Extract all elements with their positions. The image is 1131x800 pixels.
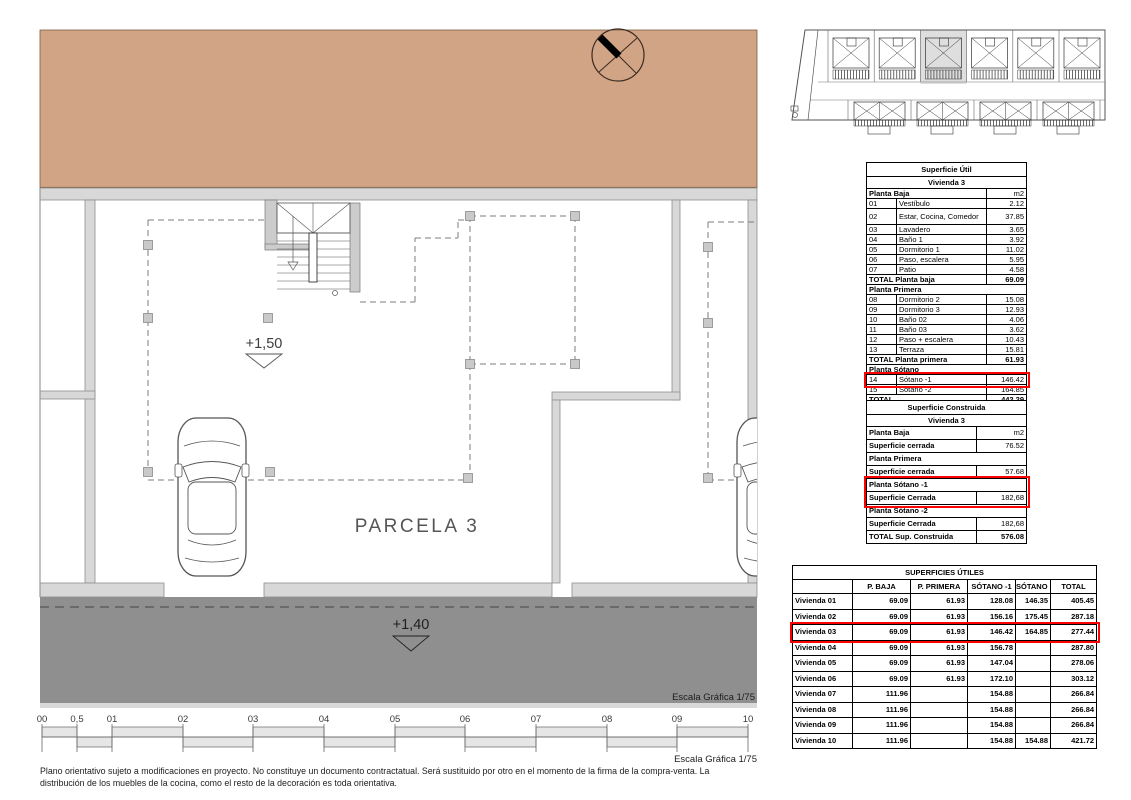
- stairs: [265, 200, 360, 296]
- area-value: 154.88: [1016, 733, 1051, 749]
- area-value: [1016, 702, 1051, 718]
- site-top-row: [828, 30, 1105, 82]
- table-row: 07Patio4.58: [867, 265, 1027, 275]
- graphic-scale: 000,501020304050607080910: [37, 714, 754, 752]
- table-row: Planta Primera: [867, 285, 1027, 295]
- row-value: 15.08: [987, 295, 1027, 305]
- row-value: 3.92: [987, 235, 1027, 245]
- row-label: Dormitorio 1: [897, 245, 987, 255]
- table-row: Superficie Útil: [867, 163, 1027, 177]
- table-row: Vivienda 0169.0961.93128.08146.35405.45: [793, 594, 1097, 610]
- scale-number: 06: [460, 714, 471, 725]
- total-value: 576.08: [977, 531, 1027, 544]
- row-number: 02: [867, 209, 897, 225]
- table-row: 10Baño 024.06: [867, 315, 1027, 325]
- car: [175, 418, 249, 576]
- area-value: 146.42: [968, 625, 1016, 641]
- table-row: Vivienda 0469.0961.93156.78287.80: [793, 640, 1097, 656]
- plan-sheet: PARCELA 3 +1,50 +1,40 Escala Gráfica 1/7…: [0, 0, 1131, 800]
- table-row: SUPERFICIES ÚTILES: [793, 566, 1097, 580]
- table-row: 08Dormitorio 215.08: [867, 295, 1027, 305]
- area-value: 266.84: [1051, 702, 1097, 718]
- scale-number: 03: [248, 714, 259, 725]
- row-value: 37.85: [987, 209, 1027, 225]
- table-row: P. BAJAP. PRIMERASÓTANO -1SÓTANO -2TOTAL: [793, 580, 1097, 594]
- area-value: 266.84: [1051, 687, 1097, 703]
- level-triangle-upper: [246, 354, 282, 368]
- row-value: 11.02: [987, 245, 1027, 255]
- area-value: 61.93: [911, 671, 968, 687]
- scale-number: 00: [37, 714, 48, 725]
- area-value: [1016, 656, 1051, 672]
- area-value: 164.85: [1016, 625, 1051, 641]
- area-value: 172.10: [968, 671, 1016, 687]
- area-value: 421.72: [1051, 733, 1097, 749]
- area-value: 154.88: [968, 733, 1016, 749]
- table-row: 11Baño 033.62: [867, 325, 1027, 335]
- row-number: 14: [867, 375, 897, 385]
- table-row: Vivienda 3: [867, 177, 1027, 189]
- scale-number: 0,5: [70, 714, 83, 725]
- table-subtitle: Vivienda 3: [867, 177, 1027, 189]
- row-value: 3.62: [987, 325, 1027, 335]
- scale-caption-band: Escala Gráfica 1/75: [672, 692, 755, 703]
- table-row: 05Dormitorio 111.02: [867, 245, 1027, 255]
- area-value: 69.09: [853, 640, 911, 656]
- row-value: 5.95: [987, 255, 1027, 265]
- vivienda-label: Vivienda 09: [793, 718, 853, 734]
- row-value: 164.85: [987, 385, 1027, 395]
- row-value: 182,68: [977, 518, 1027, 531]
- row-number: 05: [867, 245, 897, 255]
- table-row: 06Paso, escalera5.95: [867, 255, 1027, 265]
- table-title: Superficie Construida: [867, 401, 1027, 415]
- row-label: Superficie cerrada: [867, 466, 977, 479]
- row-number: 06: [867, 255, 897, 265]
- scale-number: 05: [390, 714, 401, 725]
- row-value: 4.58: [987, 265, 1027, 275]
- column-header: TOTAL: [1051, 580, 1097, 594]
- total-value: 69.09: [987, 275, 1027, 285]
- scale-number: 02: [178, 714, 189, 725]
- area-value: 69.09: [853, 609, 911, 625]
- parcel-label: PARCELA 3: [355, 516, 480, 537]
- table-row: Vivienda 08111.96154.88266.84: [793, 702, 1097, 718]
- row-value: 2.12: [987, 199, 1027, 209]
- area-value: [911, 733, 968, 749]
- table-row: TOTAL Sup. Construida576.08: [867, 531, 1027, 544]
- table-title: Superficie Útil: [867, 163, 1027, 177]
- row-label: Vestíbulo: [897, 199, 987, 209]
- total-label: TOTAL Planta baja: [867, 275, 987, 285]
- table-row: 12Paso + escalera10.43: [867, 335, 1027, 345]
- vivienda-label: Vivienda 05: [793, 656, 853, 672]
- column-header: SÓTANO -1: [968, 580, 1016, 594]
- table-row: Superficie Cerrada182,68: [867, 492, 1027, 505]
- row-label: Dormitorio 3: [897, 305, 987, 315]
- section-label: Planta Primera: [867, 285, 1027, 295]
- table-row: Vivienda 0269.0961.93156.16175.45287.18: [793, 609, 1097, 625]
- area-value: 287.80: [1051, 640, 1097, 656]
- area-value: 303.12: [1051, 671, 1097, 687]
- area-value: 156.16: [968, 609, 1016, 625]
- area-value: 278.06: [1051, 656, 1097, 672]
- area-value: 111.96: [853, 718, 911, 734]
- scale-number: 09: [672, 714, 683, 725]
- row-number: 10: [867, 315, 897, 325]
- row-number: 04: [867, 235, 897, 245]
- column-header: [793, 580, 853, 594]
- scale-number: 08: [602, 714, 613, 725]
- row-number: 13: [867, 345, 897, 355]
- area-value: 69.09: [853, 594, 911, 610]
- site-entrance-mark: [791, 106, 798, 118]
- scale-number: 07: [531, 714, 542, 725]
- disclaimer-line-1: Plano orientativo sujeto a modificacione…: [40, 766, 780, 778]
- area-value: [1016, 640, 1051, 656]
- table-row: Planta Sótano -1: [867, 479, 1027, 492]
- table-row: Planta Bajam2: [867, 427, 1027, 440]
- table-row: TOTAL Planta primera61.93: [867, 355, 1027, 365]
- row-number: 09: [867, 305, 897, 315]
- table-row: Vivienda 10111.96154.88154.88421.72: [793, 733, 1097, 749]
- road: +1,40 Escala Gráfica 1/75: [40, 597, 757, 708]
- disclaimer-text: Plano orientativo sujeto a modificacione…: [40, 766, 780, 789]
- row-label: Terraza: [897, 345, 987, 355]
- area-value: [1016, 718, 1051, 734]
- area-value: 69.09: [853, 656, 911, 672]
- row-value: 4.06: [987, 315, 1027, 325]
- table-row: 02Estar, Cocina, Comedor37.85: [867, 209, 1027, 225]
- row-number: 01: [867, 199, 897, 209]
- table-row: 15Sótano -2164.85: [867, 385, 1027, 395]
- table-row: 03Lavadero3.65: [867, 225, 1027, 235]
- row-label: Lavadero: [897, 225, 987, 235]
- row-label: Baño 1: [897, 235, 987, 245]
- vivienda-label: Vivienda 03: [793, 625, 853, 641]
- scale-number: 01: [107, 714, 118, 725]
- row-number: 03: [867, 225, 897, 235]
- table-row: Planta Sótano -2: [867, 505, 1027, 518]
- superficie-util-table: Superficie ÚtilVivienda 3Planta Bajam201…: [866, 162, 1027, 405]
- total-value: 61.93: [987, 355, 1027, 365]
- section-label: Planta Sótano -1: [867, 479, 1027, 492]
- unit-label: m2: [987, 189, 1027, 199]
- table-row: Vivienda 0669.0961.93172.10303.12: [793, 671, 1097, 687]
- column-header: SÓTANO -2: [1016, 580, 1051, 594]
- area-value: 61.93: [911, 594, 968, 610]
- row-label: Patio: [897, 265, 987, 275]
- area-value: 405.45: [1051, 594, 1097, 610]
- table-row: Vivienda 0569.0961.93147.04278.06: [793, 656, 1097, 672]
- area-value: [1016, 671, 1051, 687]
- row-label: Sótano -1: [897, 375, 987, 385]
- section-label: Planta Baja: [867, 427, 977, 440]
- area-value: [911, 687, 968, 703]
- row-value: 10.43: [987, 335, 1027, 345]
- table-row: Planta Primera: [867, 453, 1027, 466]
- table-row: Vivienda 07111.96154.88266.84: [793, 687, 1097, 703]
- section-label: Planta Sótano: [867, 365, 1027, 375]
- area-value: 61.93: [911, 609, 968, 625]
- area-value: [1016, 687, 1051, 703]
- section-label: Planta Primera: [867, 453, 1027, 466]
- row-value: 15.81: [987, 345, 1027, 355]
- table-subtitle: Vivienda 3: [867, 415, 1027, 427]
- area-value: 154.88: [968, 687, 1016, 703]
- total-label: TOTAL Planta primera: [867, 355, 987, 365]
- scale-number: 10: [743, 714, 754, 725]
- row-value: 182,68: [977, 492, 1027, 505]
- terrain: [40, 29, 757, 188]
- superficies-utiles-table: SUPERFICIES ÚTILESP. BAJAP. PRIMERASÓTAN…: [792, 565, 1097, 749]
- site-overview: [791, 30, 1105, 134]
- table-row: Planta Sótano: [867, 365, 1027, 375]
- table-row: 13Terraza15.81: [867, 345, 1027, 355]
- unit-label: m2: [977, 427, 1027, 440]
- table-row: 01Vestíbulo2.12: [867, 199, 1027, 209]
- table-row: Superficie cerrada76.52: [867, 440, 1027, 453]
- area-value: 154.88: [968, 718, 1016, 734]
- table-row: 04Baño 13.92: [867, 235, 1027, 245]
- total-label: TOTAL Sup. Construida: [867, 531, 977, 544]
- disclaimer-line-2: distribución de los muebles de la cocina…: [40, 778, 780, 790]
- area-value: 61.93: [911, 625, 968, 641]
- scale-bar-labels: 000,501020304050607080910: [37, 714, 754, 725]
- row-number: 08: [867, 295, 897, 305]
- vivienda-label: Vivienda 07: [793, 687, 853, 703]
- row-label: Paso, escalera: [897, 255, 987, 265]
- row-label: Superficie cerrada: [867, 440, 977, 453]
- section-label: Planta Sótano -2: [867, 505, 1027, 518]
- vivienda-label: Vivienda 01: [793, 594, 853, 610]
- row-value: 76.52: [977, 440, 1027, 453]
- vivienda-label: Vivienda 02: [793, 609, 853, 625]
- area-value: 277.44: [1051, 625, 1097, 641]
- area-value: 287.18: [1051, 609, 1097, 625]
- area-value: 111.96: [853, 702, 911, 718]
- row-label: Superficie Cerrada: [867, 518, 977, 531]
- area-value: 147.04: [968, 656, 1016, 672]
- table-row: 09Dormitorio 312.93: [867, 305, 1027, 315]
- row-label: Paso + escalera: [897, 335, 987, 345]
- row-value: 57.68: [977, 466, 1027, 479]
- area-value: 175.45: [1016, 609, 1051, 625]
- row-number: 12: [867, 335, 897, 345]
- table-row: Planta Bajam2: [867, 189, 1027, 199]
- level-marker-road: +1,40: [393, 617, 430, 633]
- vivienda-label: Vivienda 04: [793, 640, 853, 656]
- area-value: 69.09: [853, 671, 911, 687]
- row-label: Sótano -2: [897, 385, 987, 395]
- area-value: 111.96: [853, 733, 911, 749]
- row-number: 11: [867, 325, 897, 335]
- row-label: Dormitorio 2: [897, 295, 987, 305]
- site-bottom-row: [848, 100, 1100, 134]
- column-header: P. PRIMERA: [911, 580, 968, 594]
- table-row: TOTAL Planta baja69.09: [867, 275, 1027, 285]
- row-label: Superficie Cerrada: [867, 492, 977, 505]
- row-number: 15: [867, 385, 897, 395]
- table-row: Vivienda 09111.96154.88266.84: [793, 718, 1097, 734]
- row-label: Baño 02: [897, 315, 987, 325]
- table-title: SUPERFICIES ÚTILES: [793, 566, 1097, 580]
- area-value: [911, 702, 968, 718]
- area-value: [911, 718, 968, 734]
- table-row: Vivienda 3: [867, 415, 1027, 427]
- row-number: 07: [867, 265, 897, 275]
- row-value: 146.42: [987, 375, 1027, 385]
- area-value: 266.84: [1051, 718, 1097, 734]
- neighbor-car: [734, 418, 808, 576]
- vivienda-label: Vivienda 06: [793, 671, 853, 687]
- area-value: 61.93: [911, 656, 968, 672]
- row-value: 12.93: [987, 305, 1027, 315]
- table-row: Vivienda 0369.0961.93146.42164.85277.44: [793, 625, 1097, 641]
- level-marker-upper: +1,50: [246, 336, 283, 352]
- vivienda-label: Vivienda 08: [793, 702, 853, 718]
- scale-number: 04: [319, 714, 330, 725]
- vivienda-label: Vivienda 10: [793, 733, 853, 749]
- row-label: Estar, Cocina, Comedor: [897, 209, 987, 225]
- table-row: Superficie Cerrada182,68: [867, 518, 1027, 531]
- area-value: 156.78: [968, 640, 1016, 656]
- table-row: Superficie Construida: [867, 401, 1027, 415]
- table-row: 14Sótano -1146.42: [867, 375, 1027, 385]
- column-header: P. BAJA: [853, 580, 911, 594]
- section-label: Planta Baja: [867, 189, 987, 199]
- row-value: 3.65: [987, 225, 1027, 235]
- scale-caption: Escala Gráfica 1/75: [557, 754, 757, 765]
- area-value: 128.08: [968, 594, 1016, 610]
- area-value: 69.09: [853, 625, 911, 641]
- superficie-construida-table: Superficie ConstruidaVivienda 3Planta Ba…: [866, 400, 1027, 544]
- row-label: Baño 03: [897, 325, 987, 335]
- area-value: 111.96: [853, 687, 911, 703]
- area-value: 154.88: [968, 702, 1016, 718]
- table-row: Superficie cerrada57.68: [867, 466, 1027, 479]
- area-value: 146.35: [1016, 594, 1051, 610]
- area-value: 61.93: [911, 640, 968, 656]
